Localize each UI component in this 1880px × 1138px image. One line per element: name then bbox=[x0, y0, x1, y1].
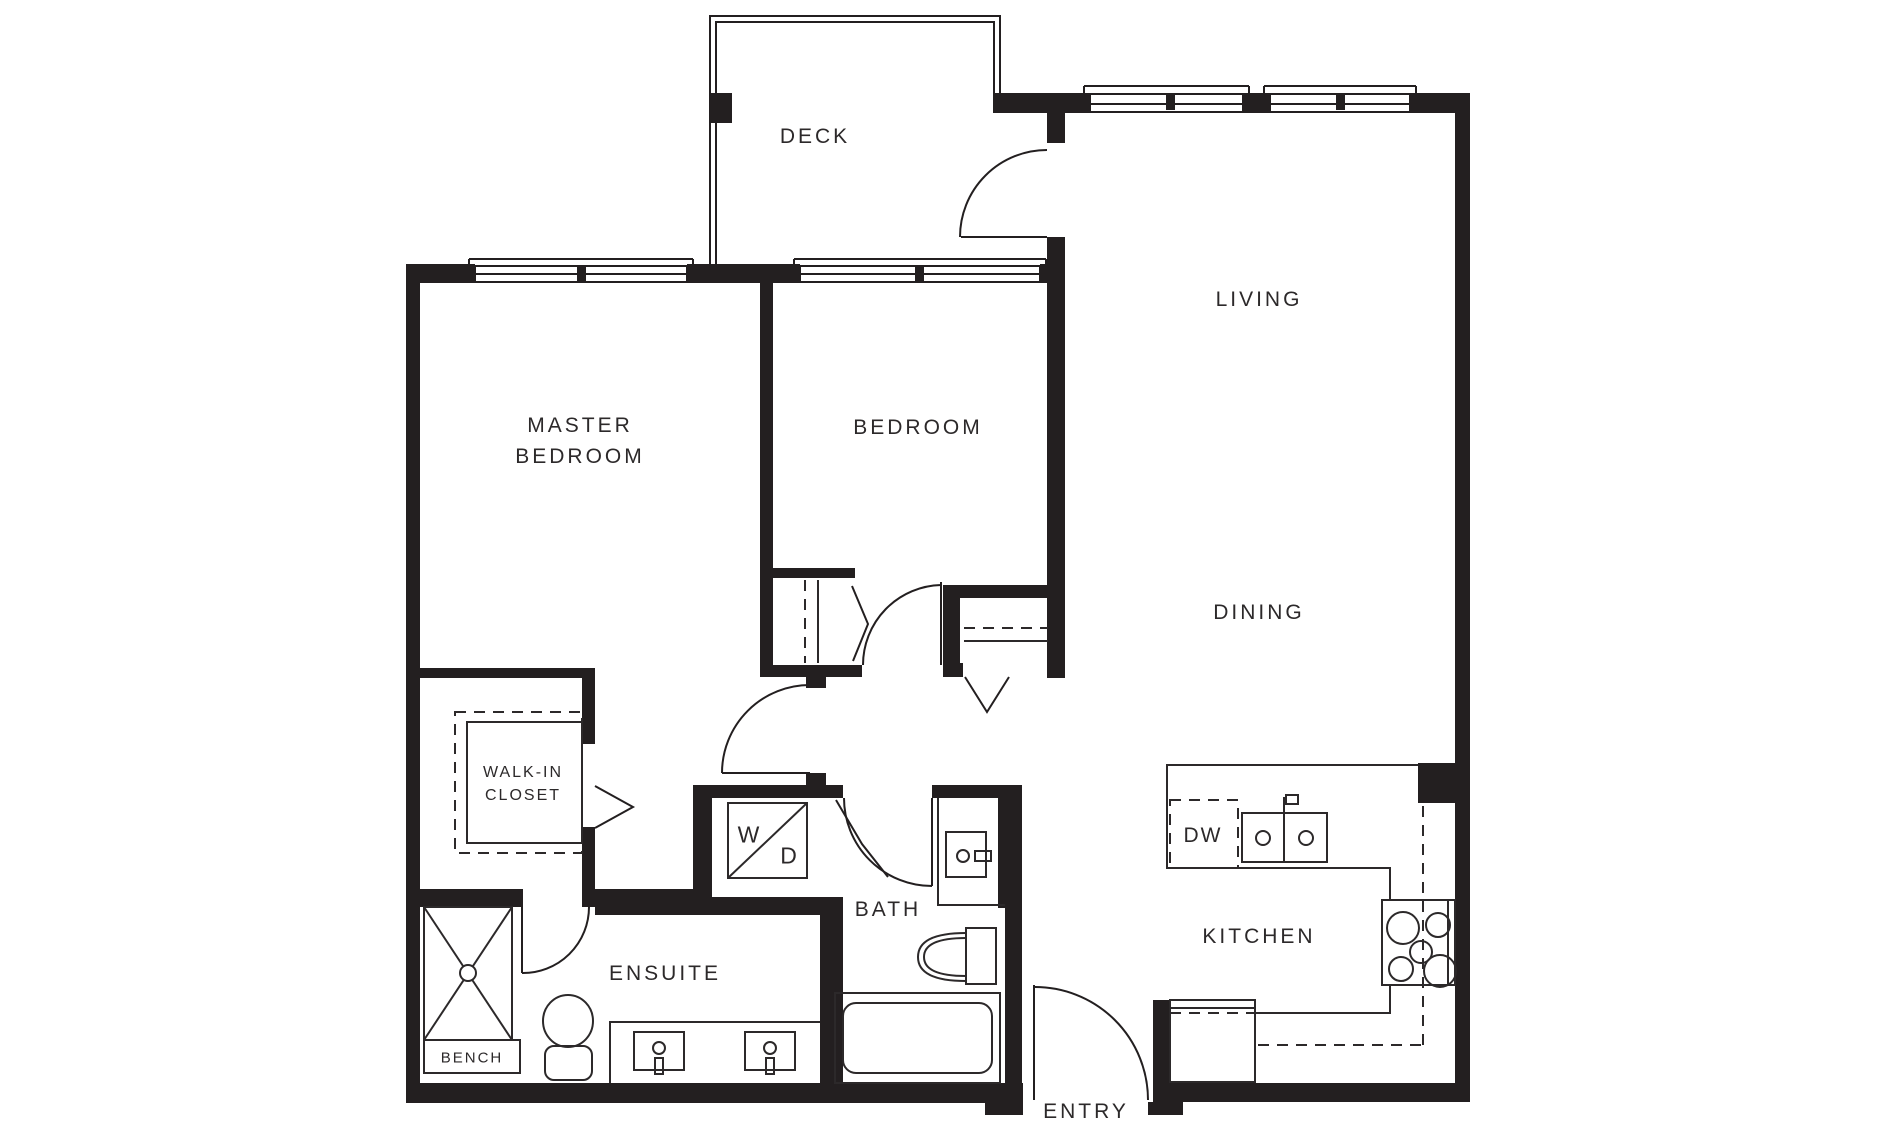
window-living-2 bbox=[1264, 86, 1416, 113]
entry-door-jamb-left bbox=[985, 1083, 1023, 1115]
room-label-kitchen: KITCHEN bbox=[1202, 925, 1315, 949]
master-door-jamb bbox=[806, 677, 826, 688]
wall-bedroom-bottom bbox=[760, 665, 862, 677]
room-label-master-line1: MASTER bbox=[527, 414, 633, 438]
room-label-dining: DINING bbox=[1213, 601, 1305, 625]
wall-wd-left bbox=[693, 785, 712, 915]
wall-top-mid bbox=[687, 264, 800, 283]
master-door-hinge-jamb bbox=[806, 773, 826, 785]
walkin-wardrobe-dashed bbox=[455, 712, 582, 853]
bedroom-door bbox=[863, 582, 941, 665]
entry-door bbox=[1034, 985, 1148, 1100]
wall-living-top-mullion bbox=[1243, 93, 1270, 113]
bath-vanity bbox=[938, 798, 1005, 905]
coat-closet-left-wall bbox=[943, 598, 960, 663]
kitchen-sink bbox=[1242, 795, 1327, 862]
stove bbox=[1382, 900, 1456, 987]
deck-railing bbox=[710, 16, 1000, 265]
ensuite-door bbox=[522, 907, 589, 973]
window-living-1 bbox=[1084, 86, 1249, 113]
room-label-walkin-line2: CLOSET bbox=[485, 787, 561, 805]
coat-closet-top-wall bbox=[943, 585, 1050, 598]
wall-top-left-corner bbox=[406, 264, 475, 283]
wall-living-top-corner bbox=[1410, 93, 1470, 113]
room-label-bath: BATH bbox=[855, 898, 921, 922]
kitchen-fixtures bbox=[1167, 765, 1456, 1082]
deck-pier bbox=[709, 93, 732, 123]
wall-bedroom-divider bbox=[760, 283, 773, 677]
floor-plan-drawing bbox=[0, 0, 1880, 1138]
walkin-wardrobe bbox=[467, 722, 582, 843]
room-label-walkin-line1: WALK-IN bbox=[483, 764, 563, 782]
entry-door-jamb-right bbox=[1148, 1102, 1183, 1115]
wall-bottom-right bbox=[1153, 1083, 1455, 1102]
bedroom-closet-top-wall bbox=[771, 568, 855, 578]
wall-bath-east-upper bbox=[998, 785, 1022, 908]
wall-walkin-east-upper bbox=[582, 668, 595, 744]
master-suite-door bbox=[722, 685, 810, 773]
windows bbox=[469, 86, 1416, 283]
room-label-deck: DECK bbox=[780, 125, 850, 149]
window-bedroom bbox=[794, 259, 1046, 283]
bath-toilet bbox=[918, 928, 996, 984]
wall-living-top-a bbox=[1065, 93, 1090, 113]
fixture-label-dishwasher: DW bbox=[1184, 824, 1223, 848]
wall-walkin-east-lower bbox=[582, 827, 595, 907]
fixture-label-washer: W bbox=[738, 822, 761, 849]
room-label-ensuite: ENSUITE bbox=[609, 962, 721, 986]
room-label-entry: ENTRY bbox=[1043, 1100, 1129, 1124]
ensuite-vanity bbox=[610, 1022, 820, 1083]
wall-deck-junction bbox=[993, 93, 1065, 113]
wall-left bbox=[406, 264, 420, 1103]
wall-right bbox=[1455, 113, 1470, 1102]
fixture-label-dryer: D bbox=[780, 843, 798, 870]
bedroom-closet-bifold bbox=[852, 586, 868, 661]
wall-kitchen-pier bbox=[1418, 763, 1470, 803]
kitchen-counter bbox=[1167, 765, 1418, 1013]
wall-ensuite-north bbox=[406, 889, 523, 907]
bathtub bbox=[835, 993, 1000, 1083]
bath-door bbox=[844, 798, 932, 886]
ensuite-toilet bbox=[543, 995, 593, 1080]
laundry-bifold bbox=[836, 800, 888, 877]
room-label-living: LIVING bbox=[1216, 288, 1303, 312]
wall-bottom-left bbox=[406, 1083, 1023, 1103]
wall-deck-living-upper bbox=[1047, 113, 1065, 143]
wall-master-bottom bbox=[406, 668, 595, 678]
wall-bedroom-living bbox=[1047, 237, 1065, 678]
walkin-opening-marker bbox=[595, 786, 633, 828]
floor-plan: DECK LIVING DINING KITCHEN MASTER BEDROO… bbox=[0, 0, 1880, 1138]
room-label-master-line2: BEDROOM bbox=[515, 445, 645, 469]
wall-fridge-stub bbox=[1153, 1000, 1170, 1083]
coat-closet-bifold bbox=[965, 677, 1009, 712]
wall-bath-west bbox=[820, 898, 843, 1083]
room-label-bedroom: BEDROOM bbox=[853, 416, 983, 440]
coat-closet-jamb bbox=[943, 663, 963, 677]
window-master-bedroom bbox=[469, 259, 693, 283]
wall-wd-top bbox=[693, 785, 843, 798]
shower bbox=[424, 907, 512, 1040]
walls bbox=[406, 93, 1470, 1115]
deck-door bbox=[960, 150, 1047, 237]
wall-bath-east-lower bbox=[1005, 908, 1022, 1083]
fixture-label-bench: BENCH bbox=[441, 1050, 504, 1067]
